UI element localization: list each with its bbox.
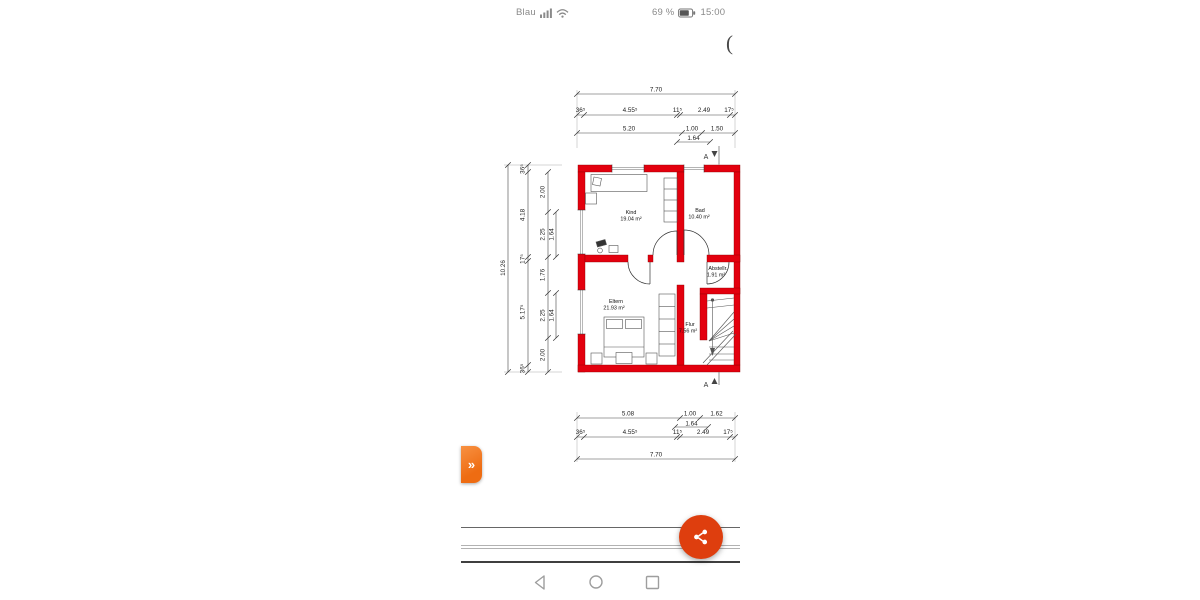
room-area-eltern: 21.93 m² [603,306,624,312]
home-circle-icon [590,576,602,588]
wardrobe-eltern [659,294,675,356]
nav-home-button[interactable] [589,575,603,589]
chair-kind [598,248,603,253]
carrier-label: Blau [516,7,536,18]
svg-text:11⁵: 11⁵ [673,107,683,114]
svg-text:1.00: 1.00 [686,126,699,133]
room-area-bad: 10.40 m² [688,215,709,221]
svg-text:2.49: 2.49 [698,107,711,114]
expand-panel-tab[interactable]: » [461,446,482,483]
svg-text:4.55⁵: 4.55⁵ [623,107,638,114]
svg-text:1.64: 1.64 [549,228,556,241]
wall-right-cut [734,172,740,365]
nav-back-button[interactable] [532,574,548,591]
svg-text:2.49: 2.49 [697,429,710,436]
svg-text:1.64: 1.64 [549,309,556,322]
svg-text:36⁵: 36⁵ [520,363,527,373]
wall-top [578,165,740,172]
svg-text:36⁵: 36⁵ [576,429,586,436]
nav-recents-button[interactable] [645,575,660,590]
svg-text:1.64: 1.64 [687,135,700,142]
nightstand-eltern-1 [591,353,602,364]
desk-item-kind [609,246,618,253]
share-icon [691,527,711,547]
battery-percent-label: 69 % [652,7,674,18]
clock-label: 15:00 [700,7,725,18]
svg-text:4.55⁵: 4.55⁵ [623,429,638,436]
back-triangle-icon [536,576,545,589]
battery-icon [678,8,696,18]
room-area-abstell: 1.91 m² [707,273,725,279]
stairs [703,298,736,365]
pillow-kind [593,177,602,186]
room-area-kind: 19.04 m² [620,217,641,223]
share-button[interactable] [679,515,723,559]
recents-square-icon [647,577,659,589]
furniture [586,175,678,365]
wifi-icon [556,8,569,18]
svg-text:5.20: 5.20 [623,126,636,133]
desk-kind [596,240,607,248]
pillow-eltern-2 [626,320,642,329]
svg-text:17⁵: 17⁵ [520,254,527,264]
svg-text:36⁵: 36⁵ [520,164,527,174]
window-left-2 [578,290,586,334]
svg-text:1.50: 1.50 [711,126,724,133]
room-name-flur: Flur [685,322,694,328]
svg-text:1.00: 1.00 [684,411,697,418]
svg-text:2.25: 2.25 [540,228,547,241]
room-name-bad: Bad [695,208,705,214]
svg-text:2.00: 2.00 [540,348,547,361]
wall-bottom [578,365,740,372]
svg-text:1.64: 1.64 [685,421,698,428]
window-left-1 [578,210,586,254]
dim-top-total: 7.70 [650,87,663,94]
room-name-eltern: Eltern [609,299,623,305]
document-title-cut: ( [726,31,733,56]
wall-kind-bad [677,172,684,262]
nightstand-kind [586,193,597,204]
svg-text:17⁵: 17⁵ [723,429,733,436]
status-bar-left: Blau [516,7,569,18]
svg-text:4.18: 4.18 [520,208,527,221]
room-name-kind: Kind [626,210,637,216]
room-area-flur: 7.56 m² [679,329,697,335]
dim-bottom-total: 7.70 [650,452,663,459]
section-label-top: A [704,154,709,161]
pillow-eltern-1 [607,320,623,329]
dresser-eltern [616,353,632,364]
window-top-2 [684,165,704,173]
dim-left-total: 10.26 [500,260,507,276]
section-arrow-top [712,151,718,157]
wall-stairs-left [700,294,707,340]
wall-left [578,172,585,372]
svg-text:1.62: 1.62 [710,411,723,418]
double-chevron-right-icon: » [468,457,475,472]
wall-mid-post [648,255,653,262]
nightstand-eltern-2 [646,353,657,364]
svg-text:2.00: 2.00 [540,185,547,198]
room-name-abstell: Abstellr. [708,266,727,272]
svg-text:1.76: 1.76 [540,268,547,281]
wall-abstell-top [707,255,740,262]
svg-text:17⁵: 17⁵ [724,107,734,114]
svg-text:5.17⁵: 5.17⁵ [520,304,527,319]
window-top-1 [612,165,644,173]
wall-abstell-bottom [700,288,740,294]
section-label-bottom: A [704,382,709,389]
wall-mid-a [585,255,628,262]
svg-text:11⁵: 11⁵ [673,429,683,436]
svg-text:5.08: 5.08 [622,411,635,418]
status-bar-right: 69 % 15:00 [652,7,725,18]
svg-text:2.25: 2.25 [540,309,547,322]
titleblock-line [461,561,740,563]
svg-text:36⁵: 36⁵ [576,107,586,114]
signal-bars-icon [540,8,552,18]
floorplan-canvas[interactable]: 7.70 36⁵ 4.55⁵ 11⁵ 2.49 17⁵ 5.20 1.00 1.… [495,80,745,472]
wall-eltern-flur [677,285,684,365]
section-arrow-bottom [712,378,718,384]
